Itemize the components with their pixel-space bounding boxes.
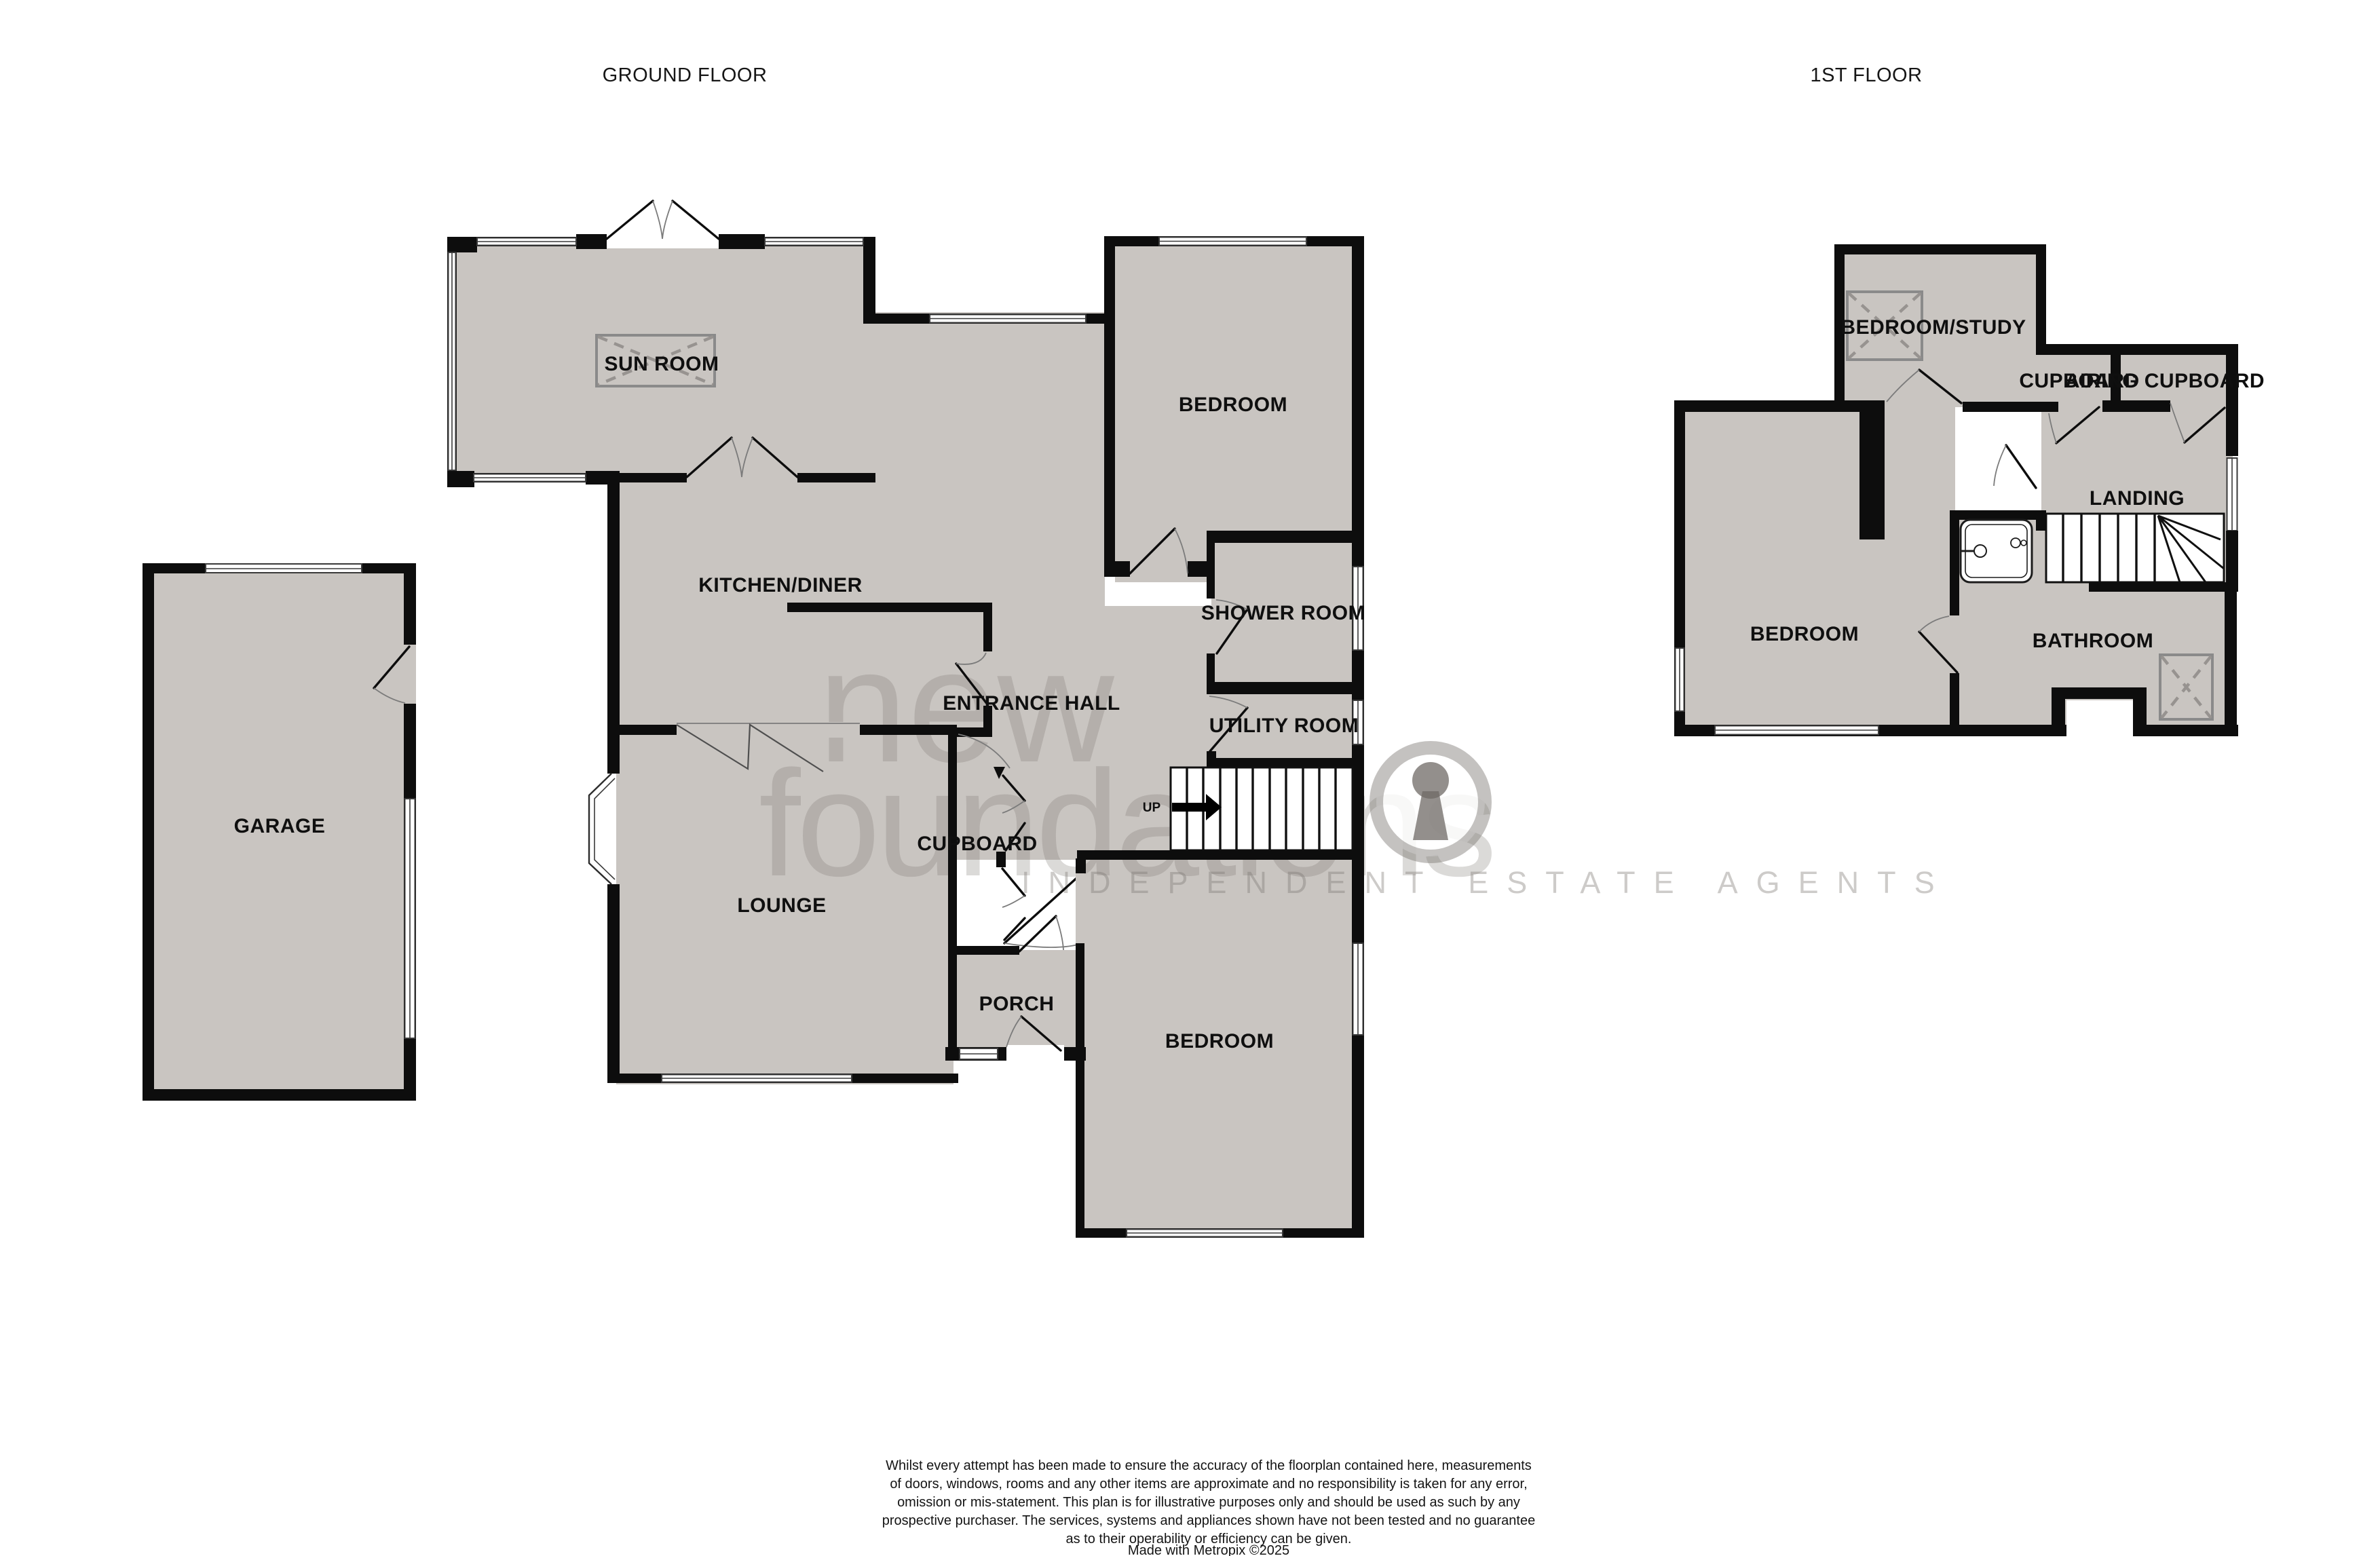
room-label-landing: LANDING (2090, 487, 2185, 510)
floorplan-page: new foundations INDEPENDENT ESTATE AGENT… (0, 0, 2380, 1556)
watermark-tagline: INDEPENDENT ESTATE AGENTS (1021, 865, 1953, 900)
stairs-up-label: UP (1143, 801, 1161, 815)
keyhole-logo-icon (1376, 748, 1485, 856)
room-label-bedroom-top: BEDROOM (1179, 394, 1287, 416)
room-label-bedroom-study: BEDROOM/STUDY (1840, 316, 2026, 339)
disclaimer-block: Whilst every attempt has been made to en… (882, 1458, 1535, 1556)
disclaimer-line-3: omission or mis-statement. This plan is … (897, 1495, 1520, 1510)
bath-tub (1961, 520, 2032, 582)
stairs-ground (1171, 767, 1353, 850)
metropix-credit: Made with Metropix ©2025 (1128, 1543, 1289, 1556)
floor-fills (149, 242, 2233, 1234)
room-label-bedroom-1f: BEDROOM (1750, 623, 1859, 645)
disclaimer-line-1: Whilst every attempt has been made to en… (886, 1458, 1532, 1473)
ground-floor-title: GROUND FLOOR (603, 64, 768, 86)
floorplan-canvas: new foundations INDEPENDENT ESTATE AGENT… (0, 0, 2380, 1556)
first-floor-title: 1ST FLOOR (1810, 64, 1922, 86)
disclaimer-line-2: of doors, windows, rooms and any other i… (890, 1477, 1527, 1492)
room-label-entrance-hall: ENTRANCE HALL (943, 692, 1120, 715)
room-label-kitchen-diner: KITCHEN/DINER (698, 574, 863, 596)
room-label-garage: GARAGE (234, 815, 326, 837)
room-label-shower-room: SHOWER ROOM (1201, 602, 1365, 624)
disclaimer-line-4: prospective purchaser. The services, sys… (882, 1513, 1535, 1528)
room-label-utility-room: UTILITY ROOM (1209, 715, 1359, 737)
room-label-cupboard: CUPBOARD (917, 833, 1037, 855)
stairs-first-floor (2046, 514, 2224, 582)
room-label-lounge: LOUNGE (737, 894, 826, 917)
bath-tap-icon (1974, 545, 1986, 557)
room-label-bedroom-bottom: BEDROOM (1165, 1030, 1274, 1052)
room-label-porch: PORCH (979, 993, 1055, 1015)
room-label-bathroom: BATHROOM (2033, 630, 2153, 652)
room-label-airing-cupboard: AIRING CUPBOARD (2065, 370, 2265, 392)
room-label-sun-room: SUN ROOM (605, 353, 719, 375)
